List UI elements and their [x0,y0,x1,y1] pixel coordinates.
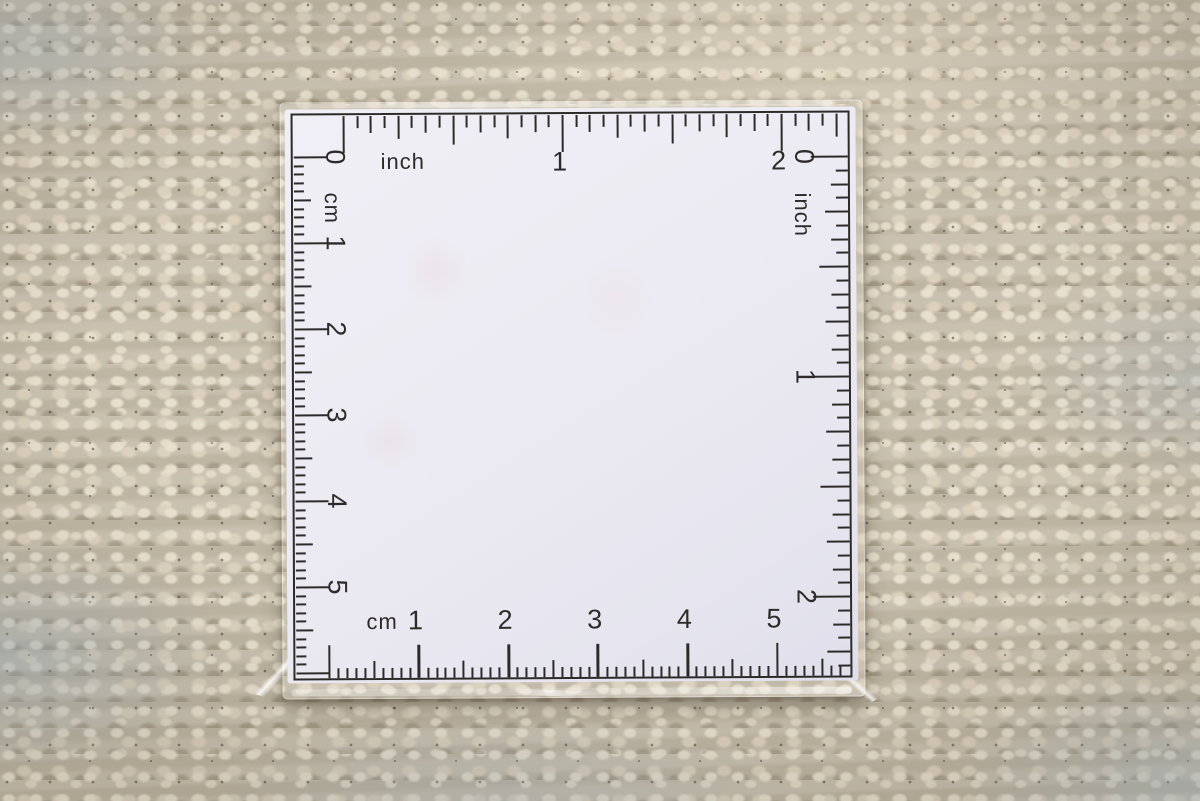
ruler-tick [364,668,366,678]
ruler-tick [293,182,303,184]
ruler-tick [603,114,605,126]
ruler-tick [834,623,851,625]
ruler-tick [295,432,305,434]
ruler-tick [836,197,848,199]
ruler-tick [294,346,304,348]
ruler-tick [493,115,495,127]
ruler-tick [827,541,850,543]
ruler-tick [296,612,306,614]
ruler-tick [295,423,305,425]
ruler-tick [705,667,707,677]
scale-numeral: 5 [323,579,350,595]
ruler-tick [831,183,848,185]
ruler-tick [294,260,304,262]
ruler-tick [295,380,305,382]
scale-numeral: 0 [321,149,348,165]
ruler-tick [296,578,306,580]
scale-numeral: 1 [408,607,424,634]
ruler-tick [417,645,420,678]
ruler-tick [294,225,304,227]
ruler-tick [295,526,305,528]
ruler-tick [295,449,305,451]
ruler-tick [294,294,304,296]
ruler-tick [356,116,358,128]
ruler-tick [507,115,509,138]
ruler-tick [295,518,305,520]
ruler-tick [543,668,545,678]
ruler-tick [295,492,305,494]
unit-label: inch [381,151,425,173]
ruler-tick [651,667,653,677]
ruler-tick [517,668,519,678]
ruler-tick [296,672,329,675]
ruler-tick [837,224,849,226]
ruler-tick [838,582,850,584]
ruler-tick [561,667,563,677]
ruler-tick [821,486,850,488]
ruler-tick [570,667,572,677]
ruler-tick [839,666,841,676]
ruler-tick [384,116,386,128]
ruler-tick [342,116,345,153]
ruler-tick [294,354,304,356]
ruler-tick [294,311,304,313]
ruler-tick [832,238,849,240]
ruler-tick [454,668,456,678]
ruler-tick [837,252,849,254]
ruler-tick [296,595,306,597]
ruler-tick [391,668,393,678]
ruler-tick [575,115,577,127]
ruler-tick [293,165,303,167]
ruler-tick [425,115,427,132]
ruler-tick [838,554,850,556]
ruler-tick [295,561,305,563]
ruler-tick [294,285,311,287]
ruler-tick [294,320,304,322]
ruler-tick [740,114,742,126]
ruler-tick [370,116,372,133]
ruler-tick [295,457,312,459]
ruler-tick [466,115,468,127]
unit-label: inch [791,193,813,237]
ruler-tick [803,666,805,676]
ruler-tick [832,403,849,405]
ruler-tick [606,667,608,677]
ruler-tick [548,115,550,127]
ruler-tick [409,668,411,678]
ruler-tick [588,667,590,677]
ruler-tick [678,667,680,677]
ruler-tick [294,371,311,373]
ruler-tick [767,666,769,676]
ruler-tick [776,643,779,676]
ruler-tick [838,499,850,501]
ruler-tick [294,337,304,339]
ruler-tick [479,115,481,132]
ruler-tick [452,115,454,144]
ruler-tick [812,666,814,676]
ruler-tick [296,569,306,571]
ruler-tick [400,668,402,678]
ruler-tick [295,406,305,408]
ruler-frame [291,111,853,681]
ruler-tick [825,211,848,213]
ruler-tick [293,174,303,176]
ruler-tick [826,321,849,323]
ruler-tick [526,668,528,678]
ruler-tick [726,114,728,137]
ruler-tick [295,397,305,399]
scale-numeral: 1 [322,235,349,251]
ruler-tick [794,666,796,676]
ruler-tick [828,651,851,653]
ruler-tick [794,113,796,125]
ruler-tick [294,191,304,193]
ruler-tick [355,669,357,679]
ruler-tick [463,661,465,678]
ruler-tick [832,293,849,295]
ruler-tick [836,169,848,171]
ruler-tick [534,115,536,132]
ruler-tick [671,114,673,143]
ruler-tick [785,666,787,676]
ruler-tick [714,667,716,677]
ruler-tick [686,644,689,677]
ruler-tick [837,334,849,336]
ruler-tick [712,114,714,126]
ruler-tick [295,552,305,554]
ruler-tick [767,114,769,126]
ruler-tick [669,667,671,677]
scale-numeral: 2 [322,321,349,337]
ruler-tick [295,535,305,537]
ruler-tick [552,660,554,677]
ruler-tick [838,417,850,419]
ruler-tick [373,661,375,678]
ruler-tick [833,513,850,515]
ruler-tick [294,303,304,305]
ruler-tick [294,363,304,365]
ruler-tick [294,208,304,210]
scale-numeral: 0 [790,149,817,165]
ruler-tick [657,114,659,126]
ruler-card: 12inch 012inch 012345cm 12345cm [285,107,859,684]
ruler-tick [723,667,725,677]
ruler-tick [820,266,849,268]
ruler-tick [660,667,662,677]
scale-numeral: 3 [587,606,603,633]
ruler-tick [295,509,305,511]
scale-numeral: 2 [793,589,820,605]
scale-numeral: 4 [323,493,350,509]
ruler-tick [759,666,761,676]
ruler-tick [295,483,305,485]
ruler-tick [837,362,849,364]
ruler-tick [507,645,510,678]
ruler-tick [294,234,304,236]
ruler-tick [411,115,413,127]
ruler-tick [835,113,837,136]
ruler-tick [838,472,850,474]
ruler-tick [397,115,399,138]
scale-numeral: 2 [771,147,787,174]
ruler-tick [839,637,851,639]
ruler-tick [535,668,537,678]
ruler-tick [839,609,851,611]
ruler-card-group: 12inch 012inch 012345cm 12345cm [285,107,859,684]
scale-numeral: 4 [677,606,693,633]
scale-numeral: 2 [498,607,514,634]
scale-numeral: 1 [791,369,818,385]
ruler-tick [438,115,440,127]
ruler-tick [633,667,635,677]
ruler-tick [296,655,306,657]
ruler-tick [732,660,734,677]
ruler-tick [833,568,850,570]
ruler-tick [750,666,752,676]
ruler-tick [294,199,311,201]
ruler-tick [808,113,810,130]
ruler-tick [827,431,850,433]
unit-label: cm [321,193,343,224]
ruler-tick [830,666,832,676]
ruler-tick [624,667,626,677]
ruler-tick [294,251,304,253]
ruler-tick [296,638,306,640]
ruler-tick [837,279,849,281]
ruler-tick [589,114,591,131]
ruler-tick [295,543,312,545]
ruler-tick [295,466,305,468]
ruler-tick [837,307,849,309]
ruler-tick [382,668,384,678]
ruler-tick [822,113,824,125]
ruler-tick [427,668,429,678]
ruler-tick [295,389,305,391]
ruler-tick [696,667,698,677]
ruler-tick [597,644,600,677]
ruler-tick [346,669,348,679]
scale-numeral: 3 [323,407,350,423]
ruler-tick [579,667,581,677]
ruler-tick [753,114,755,131]
ruler-tick [838,527,850,529]
ruler-tick [295,440,305,442]
ruler-tick [521,115,523,127]
ruler-tick [296,604,306,606]
ruler-tick [821,659,823,676]
ruler-tick [296,621,306,623]
ruler-tick [295,475,305,477]
ruler-tick [296,647,306,649]
ruler-tick [837,389,849,391]
ruler-tick [490,668,492,678]
ruler-tick [616,114,618,137]
ruler-tick [294,277,304,279]
ruler-tick [296,664,306,666]
ruler-tick [630,114,632,126]
scale-numeral: 1 [552,149,568,176]
ruler-tick [436,668,438,678]
ruler-tick [445,668,447,678]
ruler-tick [294,217,304,219]
ruler-tick [499,668,501,678]
ruler-tick [685,114,687,126]
ruler-tick [481,668,483,678]
ruler-tick [698,114,700,131]
ruler-tick [833,458,850,460]
ruler-tick [832,348,849,350]
scale-numeral: 5 [766,605,782,632]
ruler-tick [644,114,646,131]
ruler-tick [642,660,644,677]
ruler-tick [838,444,850,446]
ruler-tick [472,668,474,678]
ruler-tick [337,669,339,679]
ruler-tick [294,268,304,270]
ruler-tick [328,646,331,679]
ruler-tick [296,629,313,631]
fabric-background: 12inch 012inch 012345cm 12345cm [0,0,1200,801]
ruler-tick [741,666,743,676]
ruler-tick [615,667,617,677]
unit-label: cm [366,611,397,633]
